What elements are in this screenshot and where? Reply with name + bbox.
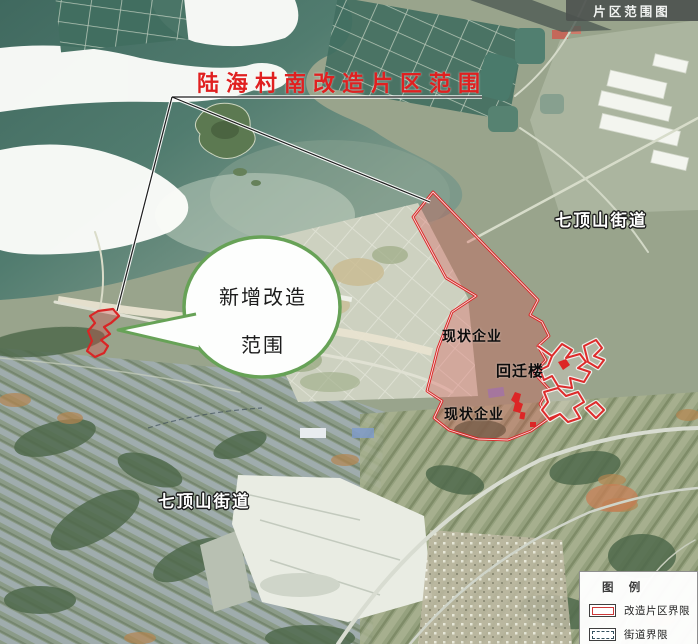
- district-boundary-symbol: [589, 604, 616, 617]
- district-scope-map: 片区范围图 陆海村南改造片区范围 新增改造 范围 现状企业 回迁楼 现状企业 七…: [0, 0, 698, 644]
- legend-title: 图 例: [602, 579, 697, 595]
- legend-item-district-boundary: 改造片区界限: [589, 603, 697, 618]
- callout-text-line2: 范围: [185, 329, 341, 358]
- legend: 图 例 改造片区界限 街道界限: [579, 571, 698, 644]
- legend-item-street-boundary: 街道界限: [589, 627, 697, 642]
- label-existing-enterprise-1: 现状企业: [442, 326, 502, 346]
- page-title: 陆海村南改造片区范围: [197, 66, 487, 98]
- legend-item-label: 街道界限: [624, 627, 668, 642]
- map-sheet-tab[interactable]: 片区范围图: [566, 0, 698, 21]
- legend-item-label: 改造片区界限: [624, 603, 690, 618]
- callout-text-line1: 新增改造: [185, 281, 341, 310]
- label-relocation-building: 回迁楼: [496, 360, 544, 381]
- street-boundary-symbol: [589, 628, 616, 641]
- label-existing-enterprise-2: 现状企业: [444, 404, 504, 424]
- label-street-top-right: 七顶山街道: [555, 207, 648, 231]
- label-street-bottom-left: 七顶山街道: [158, 488, 251, 512]
